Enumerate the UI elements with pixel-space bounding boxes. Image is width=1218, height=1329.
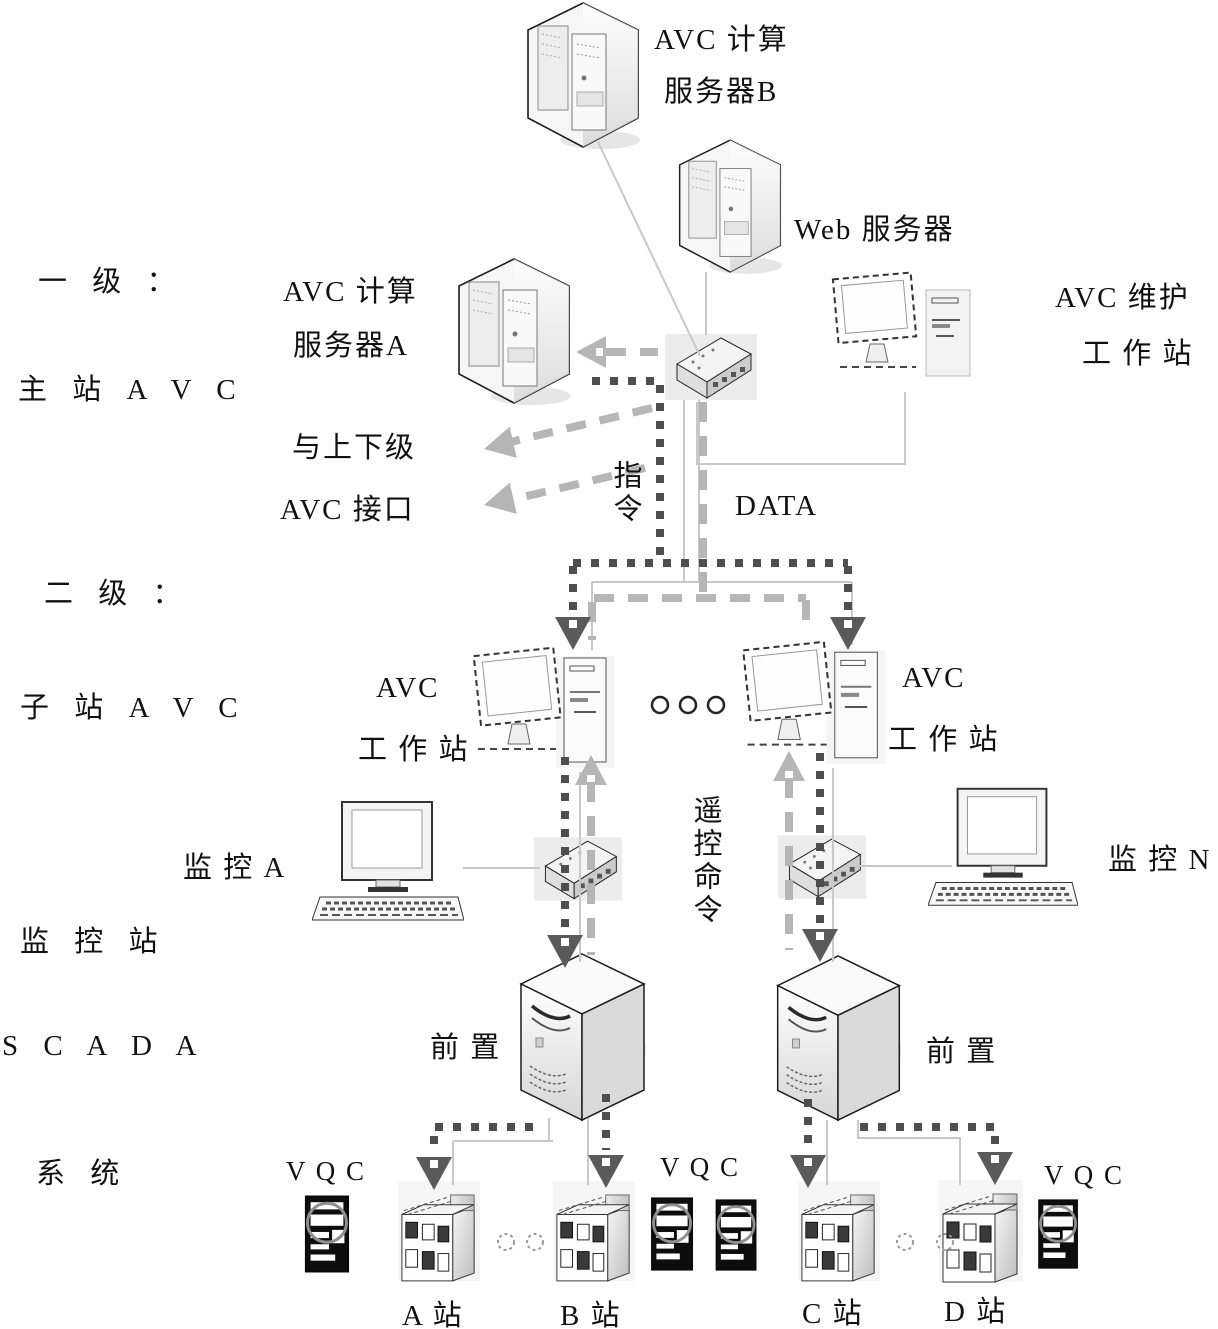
line-front1-stationa bbox=[453, 1118, 553, 1185]
server-b-icon bbox=[524, 0, 642, 152]
level1-subtitle: 主 站 A V C bbox=[18, 366, 245, 408]
station-d-label: D 站 bbox=[944, 1288, 1007, 1329]
interface-label-2: AVC 接口 bbox=[280, 486, 415, 528]
front-right-label: 前 置 bbox=[926, 1028, 997, 1070]
server-a-icon bbox=[455, 256, 573, 408]
front-end-server-left-icon bbox=[516, 950, 648, 1128]
level1-title: 一 级 ： bbox=[38, 258, 185, 300]
maintenance-label-2: 工 作 站 bbox=[1082, 330, 1194, 372]
scada-label-1: S C A D A bbox=[2, 1030, 206, 1063]
line-front2-stationd bbox=[858, 1120, 960, 1185]
data-interface-1 bbox=[498, 408, 652, 445]
station-a-label: A 站 bbox=[402, 1292, 464, 1329]
web-server-label: Web 服务器 bbox=[794, 206, 955, 248]
level2-title: 二 级 ： bbox=[44, 570, 191, 612]
monitor-station-label: 监 控 站 bbox=[20, 918, 167, 960]
data-flow-label: DATA bbox=[735, 490, 818, 523]
remote-command-label: 遥控命令 bbox=[684, 795, 726, 945]
monitor-a-pc-icon bbox=[312, 800, 464, 924]
vqc-cabinet-right-icon bbox=[1036, 1198, 1082, 1270]
network-hub-left-icon bbox=[532, 828, 624, 908]
network-hub-top-icon bbox=[662, 326, 760, 406]
avc-architecture-diagram: 一 级 ： 主 站 A V C AVC 计算 服务器B Web 服务器 AVC … bbox=[0, 0, 1218, 1329]
monitor-n-label: 监 控 N bbox=[1108, 836, 1211, 878]
vqc-cabinet-left-icon bbox=[303, 1194, 353, 1274]
server-a-label-2: 服务器A bbox=[293, 322, 409, 364]
right-avc-workstation-icon bbox=[738, 634, 893, 774]
maintenance-workstation-icon bbox=[828, 268, 980, 398]
cmd-front2-stationd bbox=[860, 1127, 995, 1152]
left-ws-label-1: AVC bbox=[376, 672, 440, 705]
cmd-front1-stationa bbox=[434, 1127, 533, 1152]
front-left-label: 前 置 bbox=[430, 1024, 501, 1066]
line-hub-down bbox=[684, 400, 699, 582]
vqc-left-label: V Q C bbox=[286, 1156, 366, 1187]
web-server-icon bbox=[676, 128, 784, 286]
server-b-label-2: 服务器B bbox=[664, 68, 778, 110]
ellipsis-workstations bbox=[652, 697, 724, 713]
maintenance-label-1: AVC 维护 bbox=[1055, 274, 1190, 316]
right-ws-label-2: 工 作 站 bbox=[888, 716, 1000, 758]
vqc-cabinet-mid2-icon bbox=[714, 1198, 760, 1272]
monitor-n-pc-icon bbox=[928, 786, 1078, 910]
monitor-a-label: 监 控 A bbox=[183, 844, 286, 886]
network-hub-right-icon bbox=[776, 826, 868, 906]
station-c-label: C 站 bbox=[802, 1290, 864, 1329]
right-ws-label-1: AVC bbox=[902, 662, 966, 695]
server-a-label-1: AVC 计算 bbox=[283, 268, 418, 310]
scada-label-2: 系 统 bbox=[36, 1150, 128, 1192]
level2-subtitle: 子 站 A V C bbox=[20, 684, 247, 726]
station-a-building-icon bbox=[398, 1180, 480, 1290]
left-avc-workstation-icon bbox=[470, 640, 620, 778]
vqc-cabinet-mid1-icon bbox=[650, 1196, 696, 1272]
station-c-building-icon bbox=[798, 1180, 880, 1290]
station-b-building-icon bbox=[553, 1180, 635, 1290]
server-b-label-1: AVC 计算 bbox=[654, 16, 789, 58]
interface-label-1: 与上下级 bbox=[292, 424, 416, 466]
station-b-label: B 站 bbox=[560, 1292, 622, 1329]
vqc-mid-label: V Q C bbox=[660, 1152, 740, 1183]
command-flow-label: 指令 bbox=[604, 460, 646, 570]
vqc-right-label: V Q C bbox=[1044, 1160, 1124, 1191]
station-d-building-icon bbox=[938, 1180, 1024, 1290]
left-ws-label-2: 工 作 站 bbox=[358, 726, 470, 768]
front-end-server-right-icon bbox=[768, 952, 908, 1128]
